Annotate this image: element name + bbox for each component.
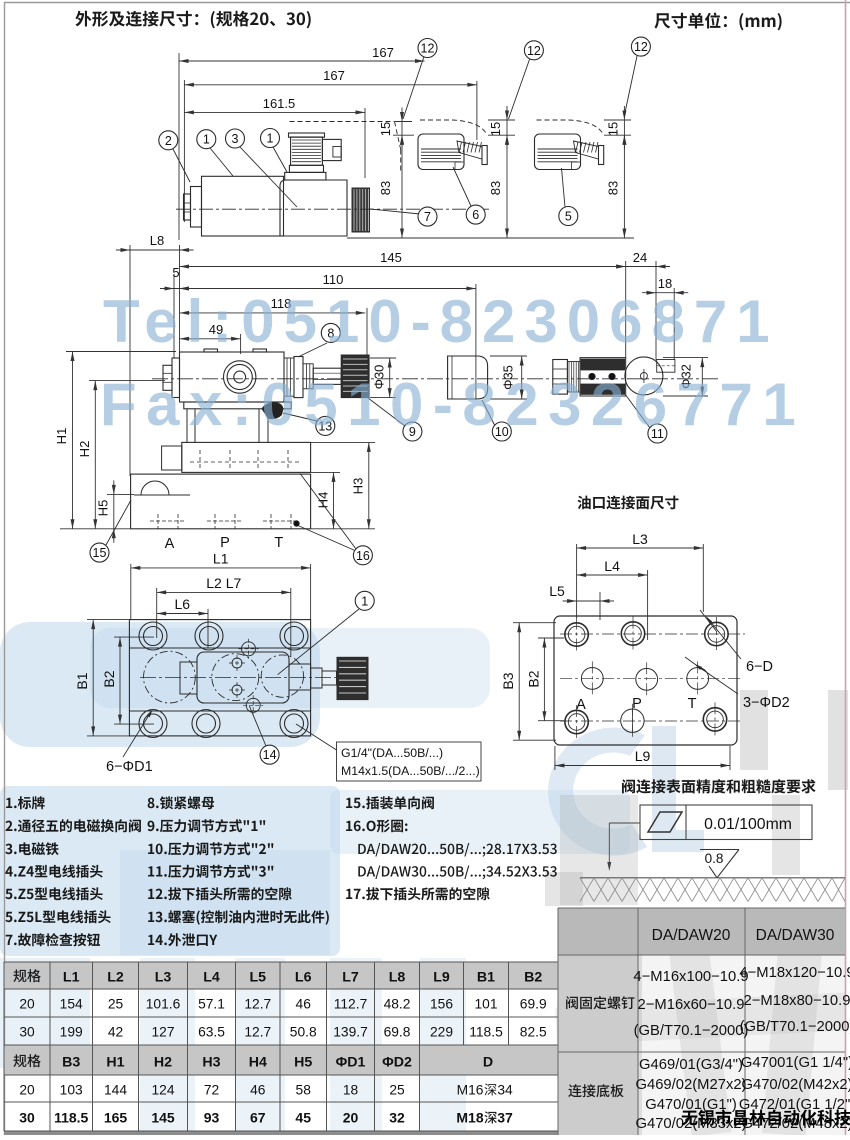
svg-text:167: 167 bbox=[372, 45, 394, 60]
svg-text:T: T bbox=[274, 535, 283, 551]
svg-text:B3: B3 bbox=[500, 672, 516, 689]
svg-text:L5: L5 bbox=[549, 583, 565, 599]
svg-text:B3: B3 bbox=[62, 1055, 80, 1071]
svg-text:5: 5 bbox=[172, 265, 179, 280]
svg-text:12.7: 12.7 bbox=[244, 1025, 271, 1040]
svg-text:83: 83 bbox=[605, 181, 620, 195]
svg-text:12: 12 bbox=[634, 40, 648, 54]
svg-text:G469/01(G3/4"): G469/01(G3/4") bbox=[639, 1057, 743, 1073]
svg-text:34: 34 bbox=[497, 1083, 513, 1098]
svg-text:101.6: 101.6 bbox=[146, 997, 181, 1012]
svg-text:2−M16x60−10.9: 2−M16x60−10.9 bbox=[638, 997, 745, 1013]
svg-text:30: 30 bbox=[19, 1025, 35, 1040]
svg-text:37: 37 bbox=[497, 1110, 513, 1126]
svg-text:30: 30 bbox=[19, 1110, 35, 1126]
svg-text:4−M18x120−10.9: 4−M18x120−10.9 bbox=[739, 965, 850, 981]
svg-text:16: 16 bbox=[356, 549, 370, 563]
svg-text:20: 20 bbox=[343, 1110, 359, 1126]
svg-text:6−ΦD1: 6−ΦD1 bbox=[106, 759, 153, 775]
svg-text:14: 14 bbox=[263, 748, 277, 762]
svg-text:T: T bbox=[688, 696, 697, 712]
svg-text:5: 5 bbox=[565, 210, 572, 224]
svg-text:15: 15 bbox=[488, 122, 503, 136]
svg-text:H5: H5 bbox=[294, 1055, 312, 1071]
svg-text:144: 144 bbox=[104, 1083, 127, 1098]
svg-text:25: 25 bbox=[108, 997, 124, 1012]
svg-text:32: 32 bbox=[389, 1110, 405, 1126]
svg-text:15: 15 bbox=[605, 122, 620, 136]
svg-text:L6: L6 bbox=[175, 596, 191, 612]
svg-text:18: 18 bbox=[343, 1083, 359, 1098]
svg-text:165: 165 bbox=[104, 1110, 128, 1126]
svg-text:ΦD1: ΦD1 bbox=[336, 1055, 366, 1071]
svg-text:167: 167 bbox=[323, 68, 345, 83]
svg-text:2: 2 bbox=[165, 134, 172, 148]
svg-text:DA/DAW30: DA/DAW30 bbox=[756, 927, 835, 944]
svg-text:H4: H4 bbox=[249, 1055, 267, 1071]
svg-text:0.01/100mm: 0.01/100mm bbox=[704, 816, 792, 833]
svg-text:B2: B2 bbox=[525, 670, 541, 687]
svg-text:G47001(G1 1/4"): G47001(G1 1/4") bbox=[741, 1055, 850, 1071]
svg-text:139.7: 139.7 bbox=[333, 1025, 368, 1040]
svg-text:6: 6 bbox=[472, 208, 479, 222]
svg-text:93: 93 bbox=[204, 1110, 220, 1126]
svg-text:G469/02(M27x2): G469/02(M27x2) bbox=[635, 1077, 746, 1093]
svg-text:L8: L8 bbox=[389, 970, 406, 986]
svg-text:B2: B2 bbox=[101, 670, 117, 687]
svg-text:67: 67 bbox=[250, 1110, 266, 1126]
svg-text:4−M16x100−10.9: 4−M16x100−10.9 bbox=[633, 969, 748, 985]
svg-text:110: 110 bbox=[323, 272, 344, 287]
svg-text:H1: H1 bbox=[106, 1055, 124, 1071]
svg-text:25: 25 bbox=[389, 1083, 405, 1098]
svg-text:72: 72 bbox=[204, 1083, 219, 1098]
svg-text:(GB/T70.1−2000): (GB/T70.1−2000) bbox=[740, 1019, 850, 1035]
svg-text:ΦD2: ΦD2 bbox=[382, 1055, 412, 1071]
svg-text:L3: L3 bbox=[632, 531, 648, 547]
svg-text:7: 7 bbox=[424, 210, 431, 224]
svg-text:46: 46 bbox=[296, 997, 312, 1012]
svg-text:P: P bbox=[220, 535, 230, 551]
svg-text:DA/DAW20: DA/DAW20 bbox=[652, 927, 731, 944]
svg-text:48.2: 48.2 bbox=[384, 997, 411, 1012]
svg-text:83: 83 bbox=[488, 181, 503, 195]
svg-text:1: 1 bbox=[203, 133, 210, 147]
svg-text:69.9: 69.9 bbox=[520, 997, 547, 1012]
svg-text:15: 15 bbox=[93, 546, 107, 560]
svg-text:0.8: 0.8 bbox=[705, 851, 724, 866]
svg-text:46: 46 bbox=[250, 1083, 266, 1098]
svg-text:L1: L1 bbox=[63, 970, 80, 986]
svg-text:154: 154 bbox=[60, 997, 83, 1012]
svg-text:1: 1 bbox=[267, 132, 274, 146]
svg-text:24: 24 bbox=[633, 250, 647, 265]
svg-text:45: 45 bbox=[295, 1110, 311, 1126]
svg-text:L3: L3 bbox=[155, 970, 172, 986]
svg-text:A: A bbox=[165, 536, 175, 552]
svg-text:A: A bbox=[576, 697, 586, 713]
svg-text:161.5: 161.5 bbox=[263, 96, 296, 111]
svg-text:Tel:0510-82306871: Tel:0510-82306871 bbox=[103, 288, 779, 355]
svg-text:L4: L4 bbox=[203, 970, 220, 986]
svg-text:3−ΦD2: 3−ΦD2 bbox=[743, 695, 790, 711]
svg-text:112.7: 112.7 bbox=[334, 997, 368, 1012]
svg-text:15: 15 bbox=[378, 122, 393, 136]
svg-text:L5: L5 bbox=[250, 970, 267, 986]
svg-text:M16: M16 bbox=[457, 1083, 484, 1098]
svg-text:H1: H1 bbox=[54, 428, 69, 445]
svg-text:12: 12 bbox=[527, 44, 541, 58]
svg-text:20: 20 bbox=[19, 1083, 35, 1098]
svg-text:3: 3 bbox=[232, 132, 239, 146]
svg-text:M14x1.5(DA...50B/.../2...): M14x1.5(DA...50B/.../2...) bbox=[341, 764, 480, 778]
svg-text:1: 1 bbox=[361, 594, 368, 608]
svg-text:H3: H3 bbox=[202, 1055, 220, 1071]
svg-text:B2: B2 bbox=[524, 970, 542, 986]
svg-text:6−D: 6−D bbox=[746, 659, 773, 675]
svg-text:G470/02(M42x2): G470/02(M42x2) bbox=[741, 1077, 850, 1093]
svg-text:L7: L7 bbox=[342, 970, 359, 986]
svg-text:H5: H5 bbox=[96, 500, 111, 517]
svg-text:M18: M18 bbox=[456, 1110, 483, 1126]
svg-text:H2: H2 bbox=[77, 441, 92, 458]
svg-text:L8: L8 bbox=[150, 233, 164, 248]
svg-text:P: P bbox=[632, 696, 642, 712]
svg-text:124: 124 bbox=[151, 1083, 174, 1098]
svg-text:199: 199 bbox=[60, 1025, 83, 1040]
svg-text:L1: L1 bbox=[213, 551, 229, 567]
svg-text:69.8: 69.8 bbox=[384, 1025, 411, 1040]
svg-text:118.5: 118.5 bbox=[54, 1110, 88, 1126]
svg-text:145: 145 bbox=[380, 250, 402, 265]
svg-text:229: 229 bbox=[430, 1025, 453, 1040]
svg-text:145: 145 bbox=[151, 1110, 175, 1126]
svg-text:L2: L2 bbox=[107, 970, 124, 986]
svg-text:G1/4"(DA...50B/...): G1/4"(DA...50B/...) bbox=[341, 746, 443, 760]
svg-text:83: 83 bbox=[378, 181, 393, 195]
svg-text:(GB/T70.1−2000): (GB/T70.1−2000) bbox=[634, 1023, 749, 1039]
svg-text:B1: B1 bbox=[74, 672, 90, 689]
svg-text:103: 103 bbox=[60, 1083, 83, 1098]
svg-text:H3: H3 bbox=[351, 478, 366, 495]
svg-text:42: 42 bbox=[108, 1025, 123, 1040]
svg-text:57.1: 57.1 bbox=[198, 997, 225, 1012]
svg-text:20: 20 bbox=[19, 997, 35, 1012]
svg-text:L6: L6 bbox=[295, 970, 312, 986]
svg-text:L4: L4 bbox=[604, 558, 620, 574]
svg-text:12: 12 bbox=[421, 42, 435, 56]
svg-text:L9: L9 bbox=[635, 748, 651, 764]
svg-text:127: 127 bbox=[151, 1025, 174, 1040]
svg-text:2−M18x80−10.9: 2−M18x80−10.9 bbox=[744, 993, 850, 1009]
svg-text:L2 L7: L2 L7 bbox=[206, 575, 241, 591]
svg-text:156: 156 bbox=[430, 997, 453, 1012]
svg-text:B1: B1 bbox=[477, 970, 495, 986]
svg-text:D: D bbox=[483, 1055, 493, 1071]
svg-text:H2: H2 bbox=[154, 1055, 172, 1071]
svg-text:H4: H4 bbox=[316, 492, 331, 509]
svg-text:82.5: 82.5 bbox=[520, 1025, 547, 1040]
svg-text:58: 58 bbox=[296, 1083, 312, 1098]
svg-text:101: 101 bbox=[474, 997, 497, 1012]
svg-text:118.5: 118.5 bbox=[469, 1025, 503, 1040]
svg-text:63.5: 63.5 bbox=[198, 1025, 225, 1040]
svg-text:Fax:0510-82326771: Fax:0510-82326771 bbox=[100, 371, 805, 438]
svg-text:L9: L9 bbox=[433, 970, 450, 986]
svg-text:12.7: 12.7 bbox=[244, 997, 271, 1012]
svg-text:50.8: 50.8 bbox=[290, 1025, 317, 1040]
